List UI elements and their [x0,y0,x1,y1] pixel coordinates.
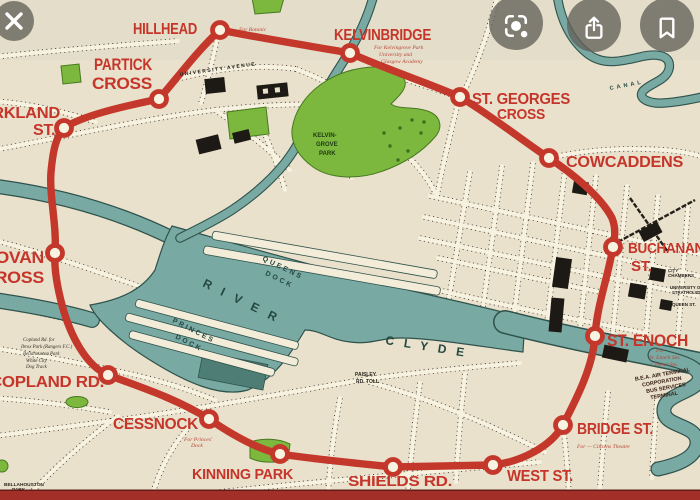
close-icon [3,10,25,32]
station-marker-kinning-park [273,447,288,462]
station-label-partick-cross-2: CROSS [92,74,152,93]
station-label-cessnock: CESSNOCK [113,416,199,433]
label-paisley-toll-1: PAISLEY [355,372,377,378]
label-strathclyde-2: STRATHCLYDE [672,290,700,295]
label-city-chambers-2: CHAMBERS [668,273,694,278]
note-bridge-st: For — Citizens Theatre [576,444,630,450]
station-label-govan-cross-2: CROSS [0,268,44,287]
map-border-line [0,490,700,492]
note-copland-5: Dog Track [25,365,48,370]
map-border-strip [0,491,700,500]
share-button[interactable] [567,0,621,52]
station-label-merkland-st-2: ST. [33,122,55,139]
station-marker-kelvinbridge [343,46,358,61]
note-cessnock-2: Dock [190,443,203,449]
station-marker-bridge-st [556,418,571,433]
station-label-shields-rd: SHIELDS RD. [348,473,452,490]
label-queen-st: QUEEN ST. [672,302,696,307]
station-label-merkland-st-1: MERKLAND [0,105,60,122]
station-label-west-st: WEST ST. [507,468,573,485]
station-marker-cowcaddens [542,151,557,166]
station-label-kelvinbridge: KELVINBRIDGE [334,27,432,44]
ibrox-stadium [66,397,88,408]
note-kelvinbridge-1: For Kelvingrove Park [373,45,424,51]
label-paisley-toll-2: RD. TOLL [356,379,379,385]
station-label-st-georges-cross-2: CROSS [497,106,545,123]
station-marker-buchanan-st [606,240,621,255]
station-label-st-enoch: ST. ENOCH [607,331,688,350]
share-icon [581,15,607,41]
note-copland-1: Copland Rd. for [23,338,55,343]
station-label-govan-cross-1: GOVAN [0,248,44,267]
note-kelvinbridge-2: University and [379,52,412,58]
station-label-hillhead: HILLHEAD [133,21,197,38]
station-marker-govan-cross [48,246,63,261]
note-copland-4: White City [26,359,48,364]
station-marker-partick-cross [152,92,167,107]
station-marker-west-st [486,458,501,473]
svg-text:KELVIN-: KELVIN- [313,133,337,139]
station-marker-cessnock [202,412,217,427]
image-viewer: HILLHEAD KELVINBRIDGE ST. GEORGES CROSS … [0,0,700,500]
bookmark-button[interactable] [640,0,694,52]
station-label-buchanan-st-2: ST. [631,258,652,275]
note-st-enoch-3: Central Stn. [651,362,678,368]
note-copland-2: Ibrox Park (Rangers F.C.) [20,345,73,350]
note-copland-3: Bellahouston Park [23,352,60,357]
note-hillhead-2: Gardens [247,33,266,39]
bookmark-icon [654,15,680,41]
note-kelvinbridge-3: Glasgow Academy [381,59,423,65]
station-marker-st-georges-cross [453,90,468,105]
station-label-copland-rd: COPLAND RD. [0,374,104,391]
station-label-cowcaddens: COWCADDENS [566,154,684,171]
station-label-bridge-st: BRIDGE ST. [577,421,653,438]
station-marker-hillhead [213,23,228,38]
subway-map: HILLHEAD KELVINBRIDGE ST. GEORGES CROSS … [0,0,700,500]
camera-lens-icon [503,13,529,39]
station-label-buchanan-st-1: BUCHANAN [628,240,700,257]
station-marker-st-enoch [588,329,603,344]
note-st-enoch-1: For [655,348,665,354]
note-st-enoch-2: St. Enoch Stn. [649,355,680,361]
station-label-partick-cross-1: PARTICK [94,55,153,74]
station-label-kinning-park: KINNING PARK [192,466,293,483]
station-marker-merkland-st [57,121,72,136]
svg-text:GROVE: GROVE [316,142,338,148]
svg-text:PARK: PARK [319,151,336,157]
